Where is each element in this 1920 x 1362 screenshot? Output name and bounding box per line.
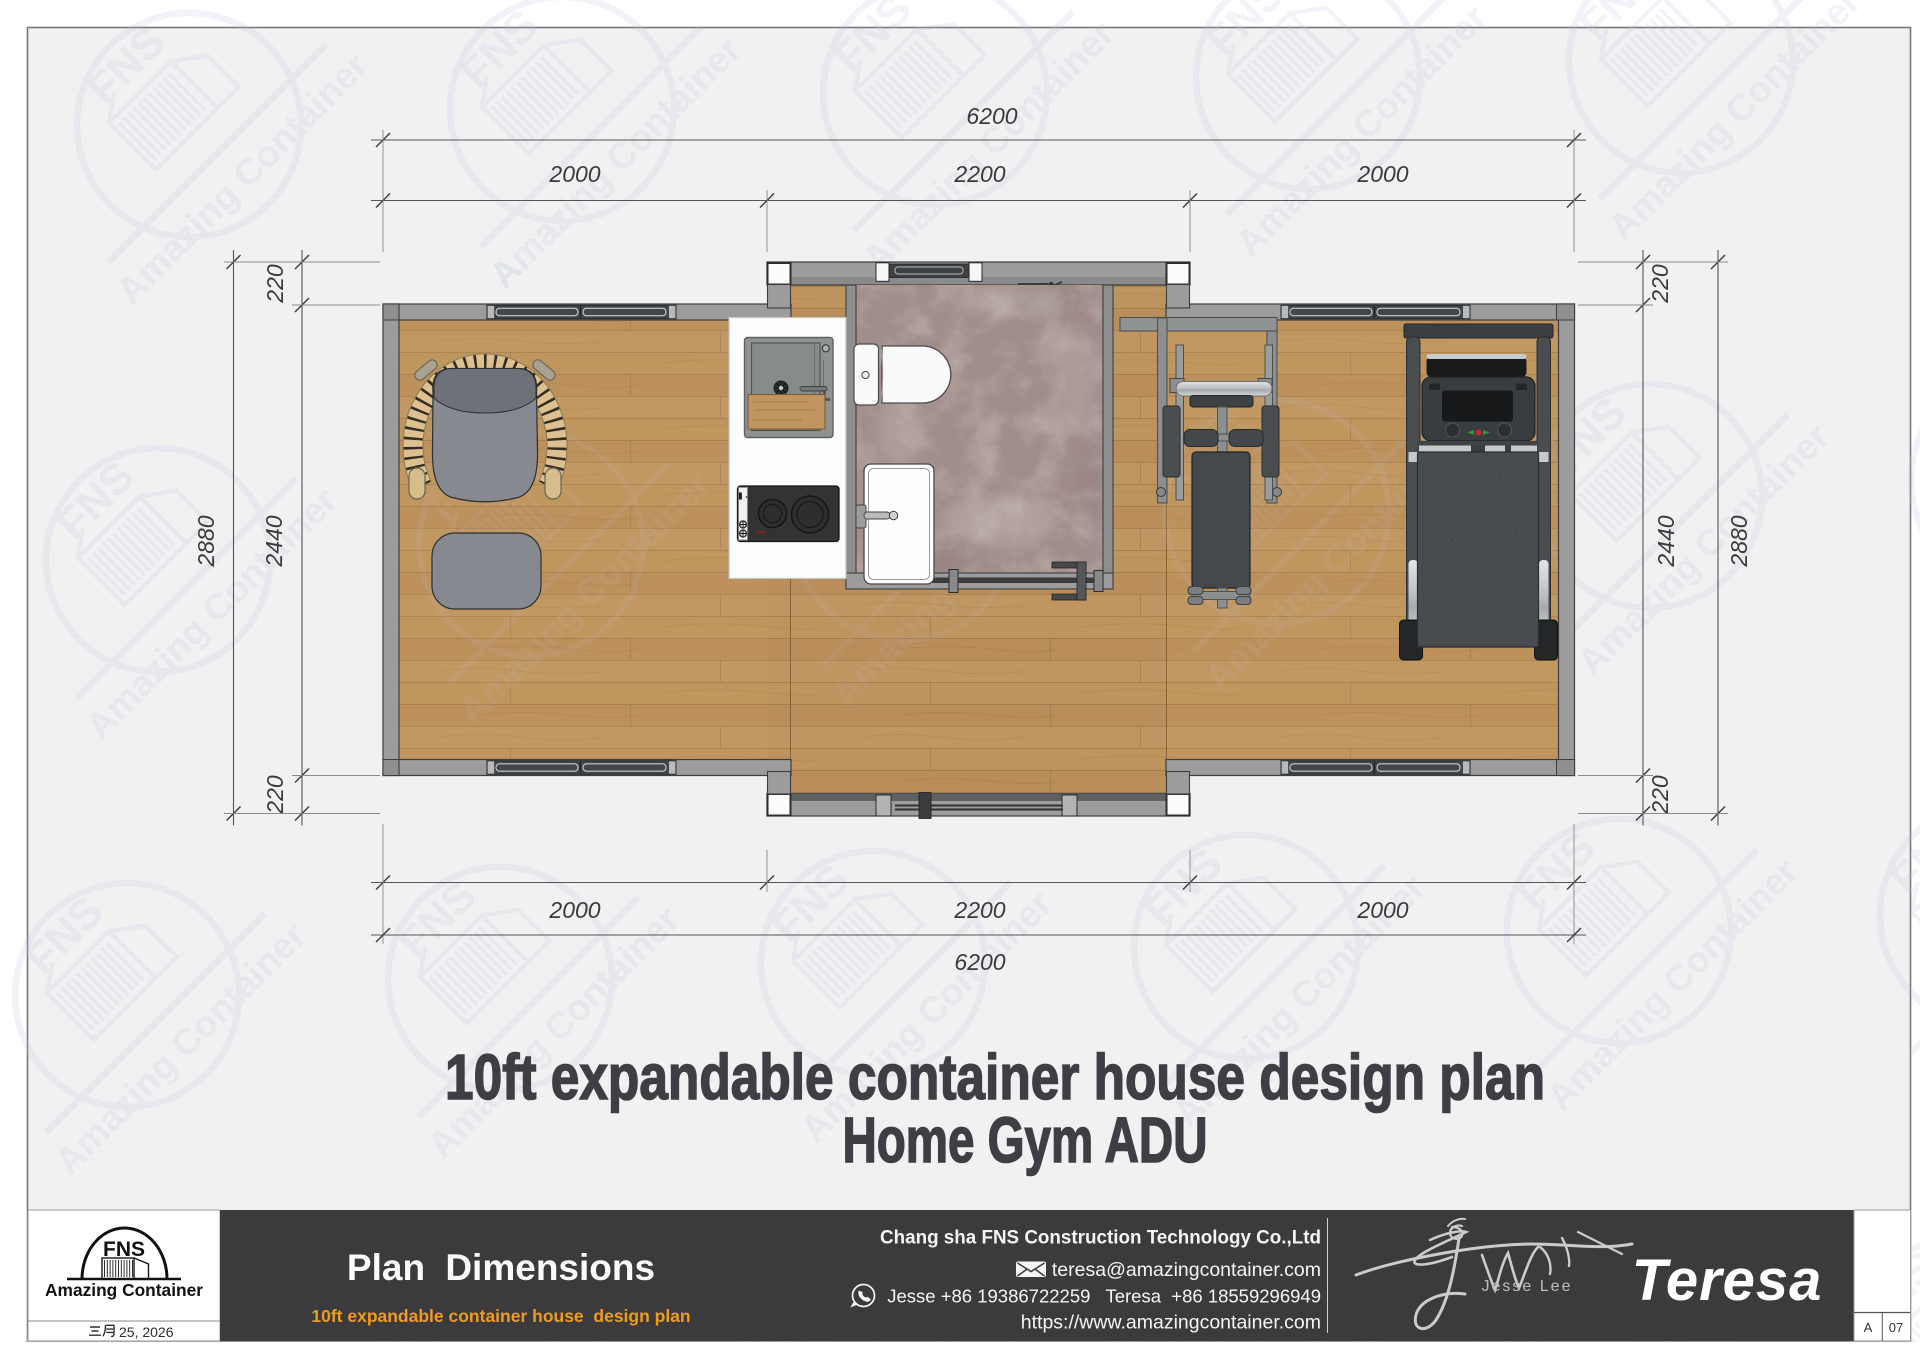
svg-text:https://www.amazingcontainer.c: https://www.amazingcontainer.com — [1021, 1312, 1321, 1334]
svg-text:Plan Dimensions: Plan Dimensions — [347, 1247, 655, 1288]
svg-text:25, 2026: 25, 2026 — [119, 1324, 174, 1340]
svg-text:2440: 2440 — [1653, 515, 1679, 567]
svg-text:teresa@amazingcontainer.com: teresa@amazingcontainer.com — [1052, 1259, 1321, 1281]
svg-text:Home Gym ADU: Home Gym ADU — [843, 1104, 1208, 1176]
svg-text:07: 07 — [1889, 1320, 1903, 1335]
svg-text:2000: 2000 — [548, 161, 600, 187]
svg-text:220: 220 — [262, 264, 288, 304]
svg-text:6200: 6200 — [954, 949, 1005, 975]
svg-text:2200: 2200 — [953, 897, 1005, 923]
svg-text:A: A — [1864, 1320, 1873, 1335]
svg-text:6200: 6200 — [966, 103, 1017, 129]
svg-text:2000: 2000 — [1356, 161, 1408, 187]
svg-text:2880: 2880 — [1726, 515, 1752, 567]
svg-text:2200: 2200 — [953, 161, 1005, 187]
svg-text:220: 220 — [1647, 264, 1673, 304]
svg-text:2440: 2440 — [261, 515, 287, 567]
svg-text:2000: 2000 — [1356, 897, 1408, 923]
svg-text:Teresa: Teresa — [1632, 1248, 1823, 1313]
svg-text:Chang sha FNS Construction Tec: Chang sha FNS Construction Technology Co… — [880, 1228, 1321, 1249]
svg-text:2000: 2000 — [548, 897, 600, 923]
svg-text:220: 220 — [262, 775, 288, 815]
svg-text:Jesse +86 19386722259 Teresa: Jesse +86 19386722259 Teresa +86 1855929… — [887, 1286, 1321, 1307]
svg-text:Jesse Lee: Jesse Lee — [1482, 1278, 1573, 1295]
svg-text:220: 220 — [1647, 775, 1673, 815]
svg-text:Amazing Container: Amazing Container — [45, 1280, 203, 1300]
svg-text:10ft expandable container hous: 10ft expandable container house design p… — [445, 1041, 1545, 1113]
svg-text:2880: 2880 — [193, 515, 219, 567]
svg-text:10ft expandable container hous: 10ft expandable container house design p… — [311, 1306, 690, 1326]
